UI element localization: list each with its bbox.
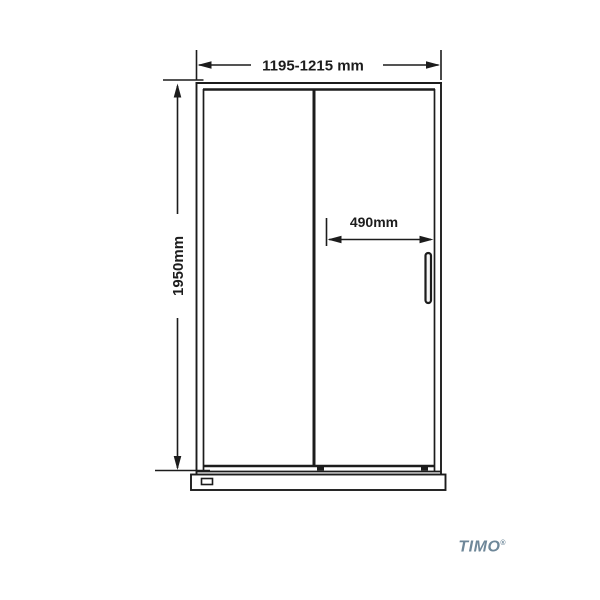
opening-dimension: 490mm — [327, 214, 434, 246]
sliding-panel-roller-right — [421, 466, 428, 471]
door-handle — [426, 253, 432, 303]
opening-arrowhead-left — [328, 236, 342, 244]
brand-logo: TIMO® — [450, 535, 514, 556]
glass-panels — [204, 89, 435, 471]
door-frame — [196, 83, 443, 475]
height-arrowhead-top — [174, 84, 182, 98]
width-dimension: 1195-1215 mm — [197, 50, 442, 80]
width-arrowhead-left — [198, 61, 212, 69]
opening-dimension-label: 490mm — [350, 214, 398, 230]
sliding-panel-roller-left — [317, 466, 324, 471]
bottom-rail — [191, 475, 446, 491]
width-dimension-label: 1195-1215 mm — [262, 58, 364, 75]
height-dimension: 1950mm — [155, 80, 210, 471]
bottom-rail-body — [191, 475, 446, 491]
height-arrowhead-bottom — [174, 456, 182, 470]
width-arrowhead-right — [426, 61, 440, 69]
height-dimension-label: 1950mm — [170, 236, 187, 296]
shower-door-diagram: 1195-1215 mm 1950mm 490mm — [0, 0, 600, 600]
brand-logo-registered-mark: ® — [500, 540, 505, 547]
opening-arrowhead-right — [420, 236, 434, 244]
technical-drawing: 1195-1215 mm 1950mm 490mm TIMO® — [0, 0, 600, 600]
brand-logo-text: TIMO — [458, 538, 500, 555]
